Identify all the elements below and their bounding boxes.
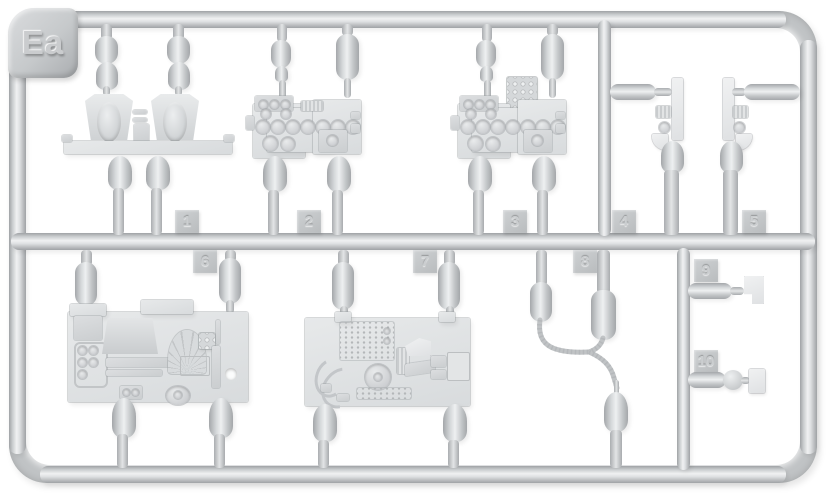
part-2-instrument-panel [251, 92, 363, 160]
gauge-dial [271, 120, 285, 134]
sprue-gate [443, 404, 467, 442]
runner [448, 440, 459, 468]
gauge-dial [259, 100, 268, 109]
gauge-dial [461, 120, 475, 134]
flat-plate [447, 352, 470, 381]
sprue-photo: Ea 1 [0, 0, 826, 494]
seat-pan [163, 102, 187, 142]
sprue-gate [541, 34, 564, 80]
lever-plate [672, 78, 683, 140]
crossbar-end-tab [62, 135, 72, 142]
lever-cylinder [733, 106, 748, 118]
gauge-dial [261, 109, 271, 119]
part-number-tag-3: 3 [503, 210, 527, 233]
runner [113, 188, 124, 235]
sprue-gate [744, 84, 800, 100]
part-3-instrument-panel [456, 92, 568, 160]
sprue-gate [108, 156, 132, 190]
panel-shoulder [70, 304, 106, 316]
sprue-gate [271, 40, 291, 68]
gauge-dial [491, 120, 505, 134]
part-number: 6 [201, 253, 209, 270]
sprue-gate [313, 404, 337, 442]
gauge-dial [270, 100, 279, 109]
rack-hole [78, 346, 87, 355]
seat-pan [97, 102, 121, 142]
crossbar-end-tab [224, 135, 234, 142]
hopper-box [102, 318, 158, 354]
sprue-gate [438, 262, 460, 310]
runner [117, 434, 128, 468]
thin-rod [216, 320, 220, 344]
radio-knob [384, 338, 390, 344]
sprue-gate [476, 40, 496, 68]
panel-edge-lug [556, 124, 565, 133]
gauge-dial [486, 137, 500, 151]
runner [664, 170, 679, 235]
small-fitting [321, 384, 331, 392]
panel-edge-lug [556, 112, 565, 119]
sprue-gate [327, 156, 351, 192]
part-1-seat-right [151, 94, 199, 144]
gauge-dial [476, 120, 490, 134]
sprue-gate [720, 141, 743, 173]
panel-edge-lug [246, 116, 254, 130]
vertical-rail-lower [677, 248, 690, 470]
round-housing-hub [374, 373, 382, 381]
track-strip [106, 370, 162, 376]
gauge-dial [327, 135, 338, 146]
runner [473, 190, 484, 235]
rack-hole [78, 358, 87, 367]
panel-top-tab [335, 312, 351, 322]
runner [730, 287, 744, 295]
seat-axle-peg [133, 110, 147, 114]
sprue-gate [209, 398, 233, 438]
gauge-dial [281, 137, 295, 151]
part-number-tag-6: 6 [193, 250, 217, 273]
runner [151, 188, 162, 235]
center-rail [11, 233, 815, 250]
runner [214, 434, 225, 468]
gauge-dial [263, 136, 278, 151]
gauge-dial [256, 120, 270, 134]
runner [537, 190, 548, 235]
gauge-dial [466, 109, 476, 119]
lever-boss [734, 122, 745, 133]
gauge-dial [281, 100, 290, 109]
gauge-dial [281, 109, 291, 119]
sprue-gate [604, 392, 628, 432]
part-number-tag-4: 4 [612, 210, 636, 233]
gauge-dial [475, 100, 484, 109]
sprue-gate [112, 398, 136, 438]
sprue-gate [661, 141, 684, 173]
small-box [431, 370, 446, 379]
part-number: 8 [581, 253, 589, 270]
sprue-gate [723, 370, 743, 390]
bolt-hole [123, 389, 130, 396]
sprue-gate [336, 34, 359, 80]
part-number: 1 [183, 213, 191, 230]
runner [536, 250, 547, 286]
sprue-gate [688, 372, 726, 388]
part-number-tag-8: 8 [573, 250, 597, 273]
equipment-box [180, 356, 210, 376]
gauge-dial [468, 136, 483, 151]
part-number-tag-9: 9 [694, 259, 718, 282]
panel-top-tab [141, 300, 193, 314]
small-fitting [337, 394, 349, 401]
panel-top-tab [439, 312, 455, 322]
part-1-seat-left [85, 94, 133, 144]
sprue-gate [219, 258, 241, 304]
gauge-dial [464, 100, 473, 109]
bolt-hole [132, 389, 139, 396]
frame-tube-bottom [40, 466, 786, 483]
part-number-tag-1: 1 [175, 210, 199, 233]
sprue-gate [332, 262, 354, 310]
runner [268, 190, 279, 235]
part-number: 4 [620, 213, 628, 230]
panel-edge-lug [451, 116, 459, 130]
part-4-lever [650, 76, 688, 150]
part-number-tag-2: 2 [297, 210, 321, 233]
part-number-tag-7: 7 [413, 250, 437, 273]
runner [723, 170, 738, 235]
sprue-gate [95, 36, 118, 64]
part-6-detail-panel [68, 300, 248, 404]
small-box [431, 356, 446, 367]
runner [610, 430, 622, 468]
part-8-cable [515, 312, 645, 402]
sprue-gate [167, 36, 190, 64]
sprue-gate [532, 156, 556, 192]
bottom-strip [357, 388, 411, 399]
lever-boss [659, 122, 670, 133]
panel-edge-lug [351, 124, 360, 133]
sprue-gate [688, 283, 732, 299]
rack-hole [89, 346, 98, 355]
vertical-rail-upper [598, 20, 611, 236]
runner [332, 190, 343, 235]
part-number-tag-10: 10 [694, 350, 718, 373]
panel-hole [225, 368, 237, 380]
sprue-gate [468, 156, 492, 192]
part-number: 10 [698, 353, 715, 370]
runner [597, 250, 610, 294]
rack-hole [89, 358, 98, 367]
part-number-tag-5: 5 [742, 210, 766, 233]
stowage-box [74, 316, 102, 340]
ribbed-tab [301, 101, 323, 111]
track-strip [106, 358, 170, 367]
valve-hub [174, 391, 182, 399]
part-number: 3 [511, 213, 519, 230]
gauge-dial [506, 120, 520, 134]
rack-hole [78, 370, 87, 379]
gauge-dial [486, 109, 496, 119]
part-number: 7 [421, 253, 429, 270]
sprue-frame-label-tab: Ea [8, 8, 78, 78]
panel-edge-lug [351, 112, 360, 119]
gauge-dial [301, 120, 315, 134]
gauge-dial [532, 135, 543, 146]
part-number: 2 [305, 213, 313, 230]
seat-axle-peg [133, 118, 147, 122]
part-7-radio-panel [305, 312, 470, 406]
sprue-gate [146, 156, 170, 190]
runner [318, 440, 329, 468]
part-number: 5 [750, 213, 758, 230]
part-10-bracket [749, 369, 765, 393]
part-1-crossbar [64, 141, 232, 154]
frame-tube-top [40, 11, 786, 28]
sprue-frame-label: Ea [22, 24, 64, 62]
sprue-gate [263, 156, 287, 192]
gauge-dial [486, 100, 495, 109]
gauge-dial [286, 120, 300, 134]
radio-knob [384, 328, 390, 334]
part-number: 9 [702, 262, 710, 279]
lever-cylinder [656, 106, 671, 118]
vertical-channel [212, 346, 220, 388]
